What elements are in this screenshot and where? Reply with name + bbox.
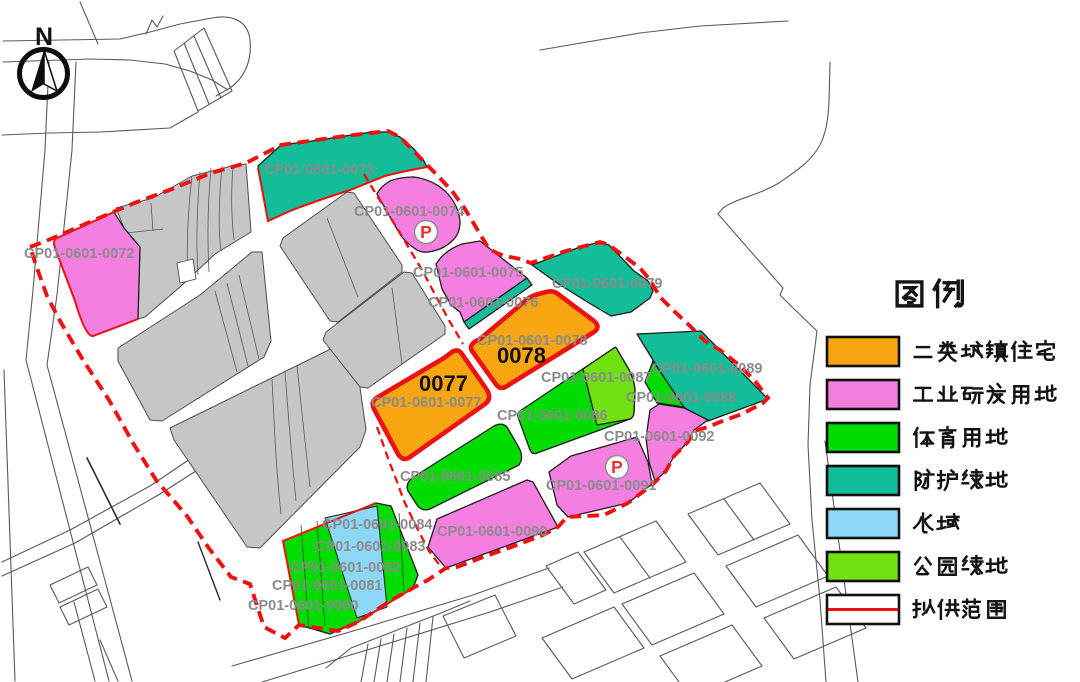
svg-text:CP01-0601-0084: CP01-0601-0084: [322, 517, 432, 533]
svg-text:CP01-0601-0090: CP01-0601-0090: [437, 524, 547, 540]
svg-text:CP01-0601-0082: CP01-0601-0082: [290, 560, 400, 576]
svg-text:CP01-0601-0072: CP01-0601-0072: [24, 246, 134, 262]
svg-text:P: P: [420, 222, 432, 242]
svg-text:CP01-0601-0092: CP01-0601-0092: [604, 429, 714, 445]
svg-text:0078: 0078: [497, 343, 546, 368]
svg-text:CP01-0601-0089: CP01-0601-0089: [652, 361, 762, 377]
svg-text:CP01-0601-0088: CP01-0601-0088: [626, 390, 736, 406]
svg-text:P: P: [611, 457, 623, 477]
svg-text:CP01-0601-0081: CP01-0601-0081: [272, 578, 382, 594]
svg-text:CP01-0601-0073: CP01-0601-0073: [264, 162, 374, 178]
svg-text:CP01-0601-0080: CP01-0601-0080: [248, 598, 358, 614]
svg-text:CP01-0601-0075: CP01-0601-0075: [413, 265, 523, 281]
svg-text:CP01-0601-0087: CP01-0601-0087: [541, 370, 651, 386]
svg-text:CP01-0601-0086: CP01-0601-0086: [497, 408, 607, 424]
svg-text:CP01-0601-0076: CP01-0601-0076: [428, 295, 538, 311]
svg-text:CP01-0601-0083: CP01-0601-0083: [315, 539, 425, 555]
svg-text:CP01-0601-0085: CP01-0601-0085: [400, 469, 510, 485]
svg-text:CP01-0601-0077: CP01-0601-0077: [371, 395, 481, 411]
svg-text:CP01-0601-0074: CP01-0601-0074: [354, 204, 464, 220]
svg-text:N: N: [35, 23, 53, 51]
svg-text:0077: 0077: [419, 371, 468, 396]
svg-text:CP01-0601-0091: CP01-0601-0091: [546, 478, 656, 494]
svg-text:CP01-0601-0079: CP01-0601-0079: [552, 276, 662, 292]
